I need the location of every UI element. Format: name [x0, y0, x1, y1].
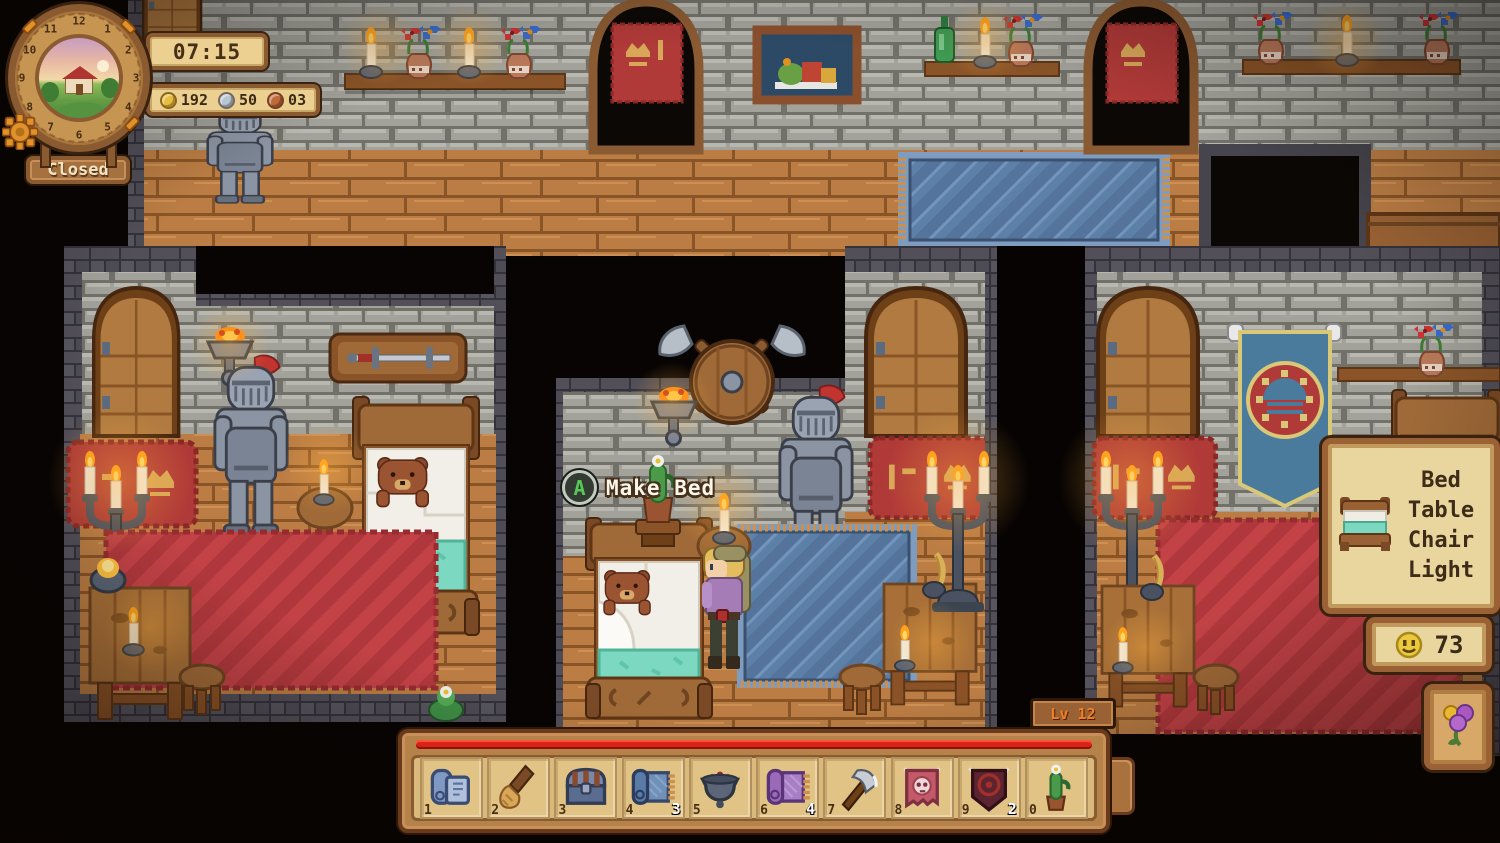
decoration-panel[interactable]	[1424, 684, 1492, 770]
stool-right	[1194, 665, 1238, 714]
currency-panel: 1925003	[146, 84, 320, 116]
build-panel: BedTableChairLight	[1322, 438, 1500, 614]
currency-value: 192	[181, 91, 208, 109]
currency-silver: 50	[218, 91, 257, 109]
slot-number: 9	[962, 803, 970, 818]
hotbar-slot-2[interactable]: 2	[487, 757, 550, 819]
slot-number: 1	[424, 803, 432, 818]
slot-number: 4	[626, 803, 634, 818]
hotbar-slot-9[interactable]: 92	[958, 757, 1021, 819]
rug-blue-icon	[629, 764, 677, 812]
hotbar-slot-0[interactable]: 0	[1025, 757, 1088, 819]
slot-number: 8	[895, 803, 903, 818]
clock-number: 11	[44, 22, 57, 35]
banner-skull-icon	[898, 764, 946, 812]
hotbar-slot-3[interactable]: 3	[554, 757, 617, 819]
currency-gold: 192	[160, 91, 208, 109]
slot-number: 3	[558, 803, 566, 818]
happiness-counter: 73	[1366, 617, 1492, 672]
prompt-label: Make Bed	[606, 476, 715, 500]
slot-count: 4	[806, 800, 815, 818]
hotbar-slot-6[interactable]: 64	[756, 757, 819, 819]
blueprint-icon	[428, 764, 476, 812]
currency-panel-row: 1925003	[160, 91, 306, 109]
clock-number: 10	[23, 43, 36, 56]
build-item-bed: Bed	[1394, 466, 1488, 496]
slot-number: 2	[491, 803, 499, 818]
axe-icon	[831, 764, 879, 812]
cauldron-icon	[696, 764, 744, 812]
doorway-top-1[interactable]	[593, 2, 699, 150]
hotbar-slot-5[interactable]: 5	[689, 757, 752, 819]
broom-icon	[495, 764, 543, 812]
build-item-chair: Chair	[1394, 526, 1488, 556]
hotbar-handle[interactable]	[1108, 757, 1135, 815]
slot-number: 0	[1029, 803, 1037, 818]
hotbar: 1234356478920	[398, 729, 1110, 833]
slot-count: 2	[1008, 800, 1017, 818]
hotbar-slots: 1234356478920	[411, 755, 1097, 821]
build-item-table: Table	[1394, 496, 1488, 526]
clock-number: 2	[125, 43, 132, 56]
clock-number: 9	[19, 72, 26, 85]
clock-widget: 121234567891011	[8, 4, 150, 152]
clock-number: 7	[47, 121, 54, 134]
rug-blue-top	[898, 152, 1170, 248]
slot-number: 6	[760, 803, 768, 818]
game-scene	[0, 0, 1500, 843]
clock-number: 1	[104, 22, 111, 35]
interaction-prompt: A Make Bed	[562, 470, 715, 505]
gear-icon[interactable]	[2, 114, 38, 150]
build-panel-items: BedTableChairLight	[1394, 466, 1488, 586]
day-progress-bar	[416, 740, 1092, 749]
happiness-value: 73	[1435, 631, 1464, 659]
copper-coin-icon	[267, 92, 284, 109]
smiley-icon	[1395, 631, 1423, 659]
gamepad-a-button[interactable]: A	[562, 470, 597, 505]
level-label: Lv 12	[1050, 705, 1095, 723]
time-panel: 07:15	[146, 33, 268, 70]
cactus-icon	[1032, 764, 1080, 812]
stool-left	[180, 665, 224, 714]
currency-value: 50	[239, 91, 257, 109]
clock-number: 5	[104, 121, 111, 134]
level-badge: Lv 12	[1030, 698, 1116, 729]
clock-number: 12	[72, 15, 85, 28]
time-value: 07:15	[173, 40, 241, 64]
slot-number: 5	[693, 803, 701, 818]
flower-icon	[1438, 701, 1478, 753]
slot-number: 7	[827, 803, 835, 818]
status-label: Closed	[47, 160, 108, 180]
sword-plaque	[330, 334, 466, 382]
clock-number: 4	[125, 100, 132, 113]
chest-icon	[562, 764, 610, 812]
hotbar-slot-1[interactable]: 1	[420, 757, 483, 819]
clock-number: 8	[26, 100, 33, 113]
button-letter: A	[573, 476, 585, 500]
stool-center	[840, 665, 884, 714]
gold-coin-icon	[160, 92, 177, 109]
silver-coin-icon	[218, 92, 235, 109]
rug-purple-icon	[764, 764, 812, 812]
hotbar-slot-8[interactable]: 8	[891, 757, 954, 819]
doorway-top-2[interactable]	[1088, 2, 1194, 150]
bed-unmade[interactable]	[586, 518, 712, 718]
currency-value: 03	[288, 91, 306, 109]
banner-dark-icon	[965, 764, 1013, 812]
wall-shelf-far-right	[1338, 368, 1500, 381]
painting	[757, 30, 857, 100]
clock-number: 3	[133, 72, 140, 85]
currency-copper: 03	[267, 91, 306, 109]
clock-number: 6	[76, 129, 83, 142]
build-item-light: Light	[1394, 556, 1488, 586]
hotbar-slot-7[interactable]: 7	[823, 757, 886, 819]
slot-count: 3	[672, 800, 681, 818]
hotbar-slot-4[interactable]: 43	[622, 757, 685, 819]
bed-icon	[1338, 495, 1394, 557]
